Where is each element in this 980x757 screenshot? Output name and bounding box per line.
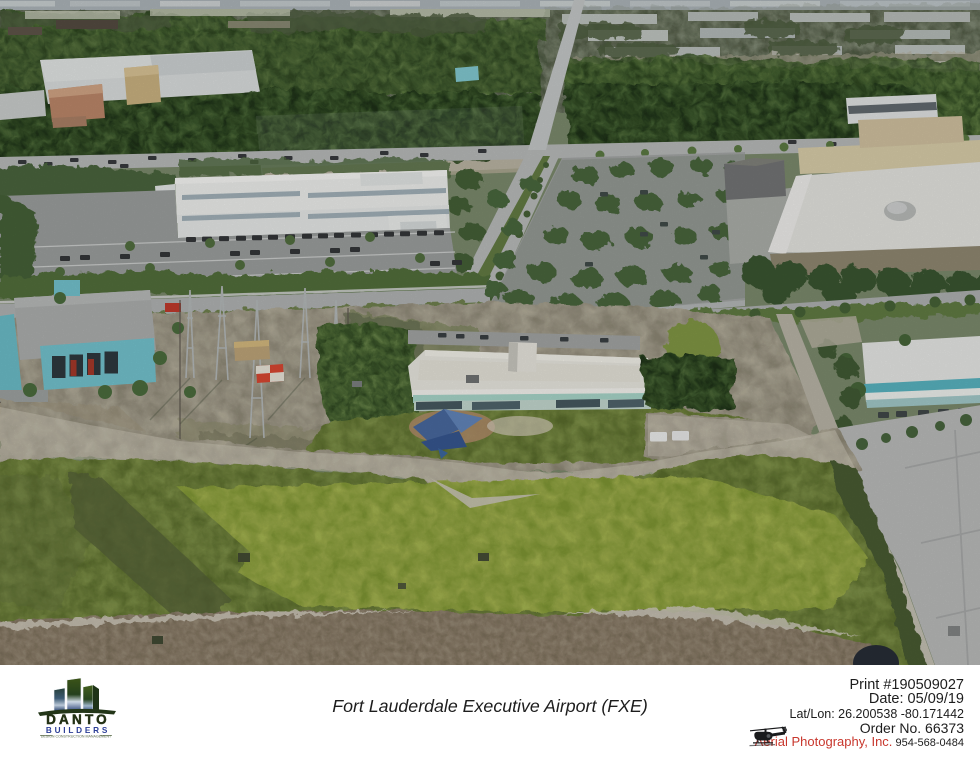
svg-text:DESIGN CONSTRUCTION MANAGEMENT: DESIGN CONSTRUCTION MANAGEMENT — [41, 735, 112, 739]
